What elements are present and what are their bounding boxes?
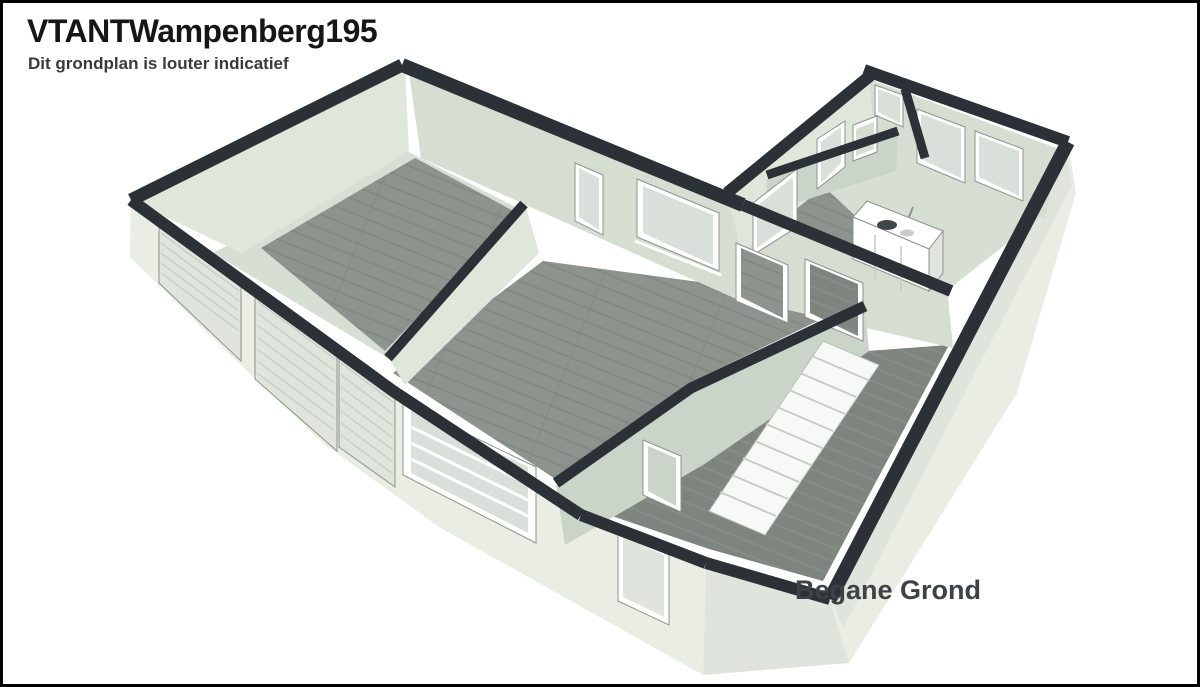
floorplan-3d-render <box>3 3 1197 684</box>
cooktop <box>877 220 897 230</box>
page-title: VTANTWampenberg195 <box>27 13 377 50</box>
page-subtitle: Dit grondplan is louter indicatief <box>28 54 289 74</box>
floorplan-page: VTANTWampenberg195 Dit grondplan is lout… <box>0 0 1200 687</box>
sink <box>900 230 914 237</box>
floor-label: Begane Grond <box>795 575 981 606</box>
